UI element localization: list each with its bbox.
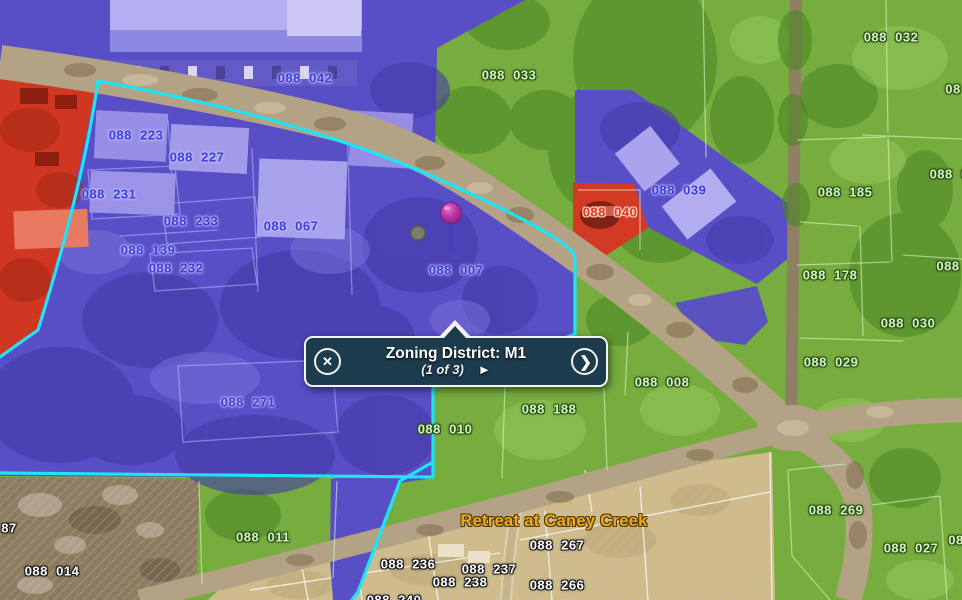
next-result-icon[interactable]: ❯	[571, 348, 598, 375]
close-icon[interactable]: ✕	[314, 348, 341, 375]
zoning-popup: ✕ Zoning District: M1 (1 of 3) ► ❯	[304, 336, 608, 387]
map-art	[0, 0, 962, 600]
popup-title: Zoning District: M1	[386, 345, 526, 363]
result-page-indicator: (1 of 3)	[421, 363, 464, 378]
play-icon[interactable]: ►	[478, 363, 491, 378]
zoning-map-canvas[interactable]: 088 042088 223088 227088 231088 233088 0…	[0, 0, 962, 600]
